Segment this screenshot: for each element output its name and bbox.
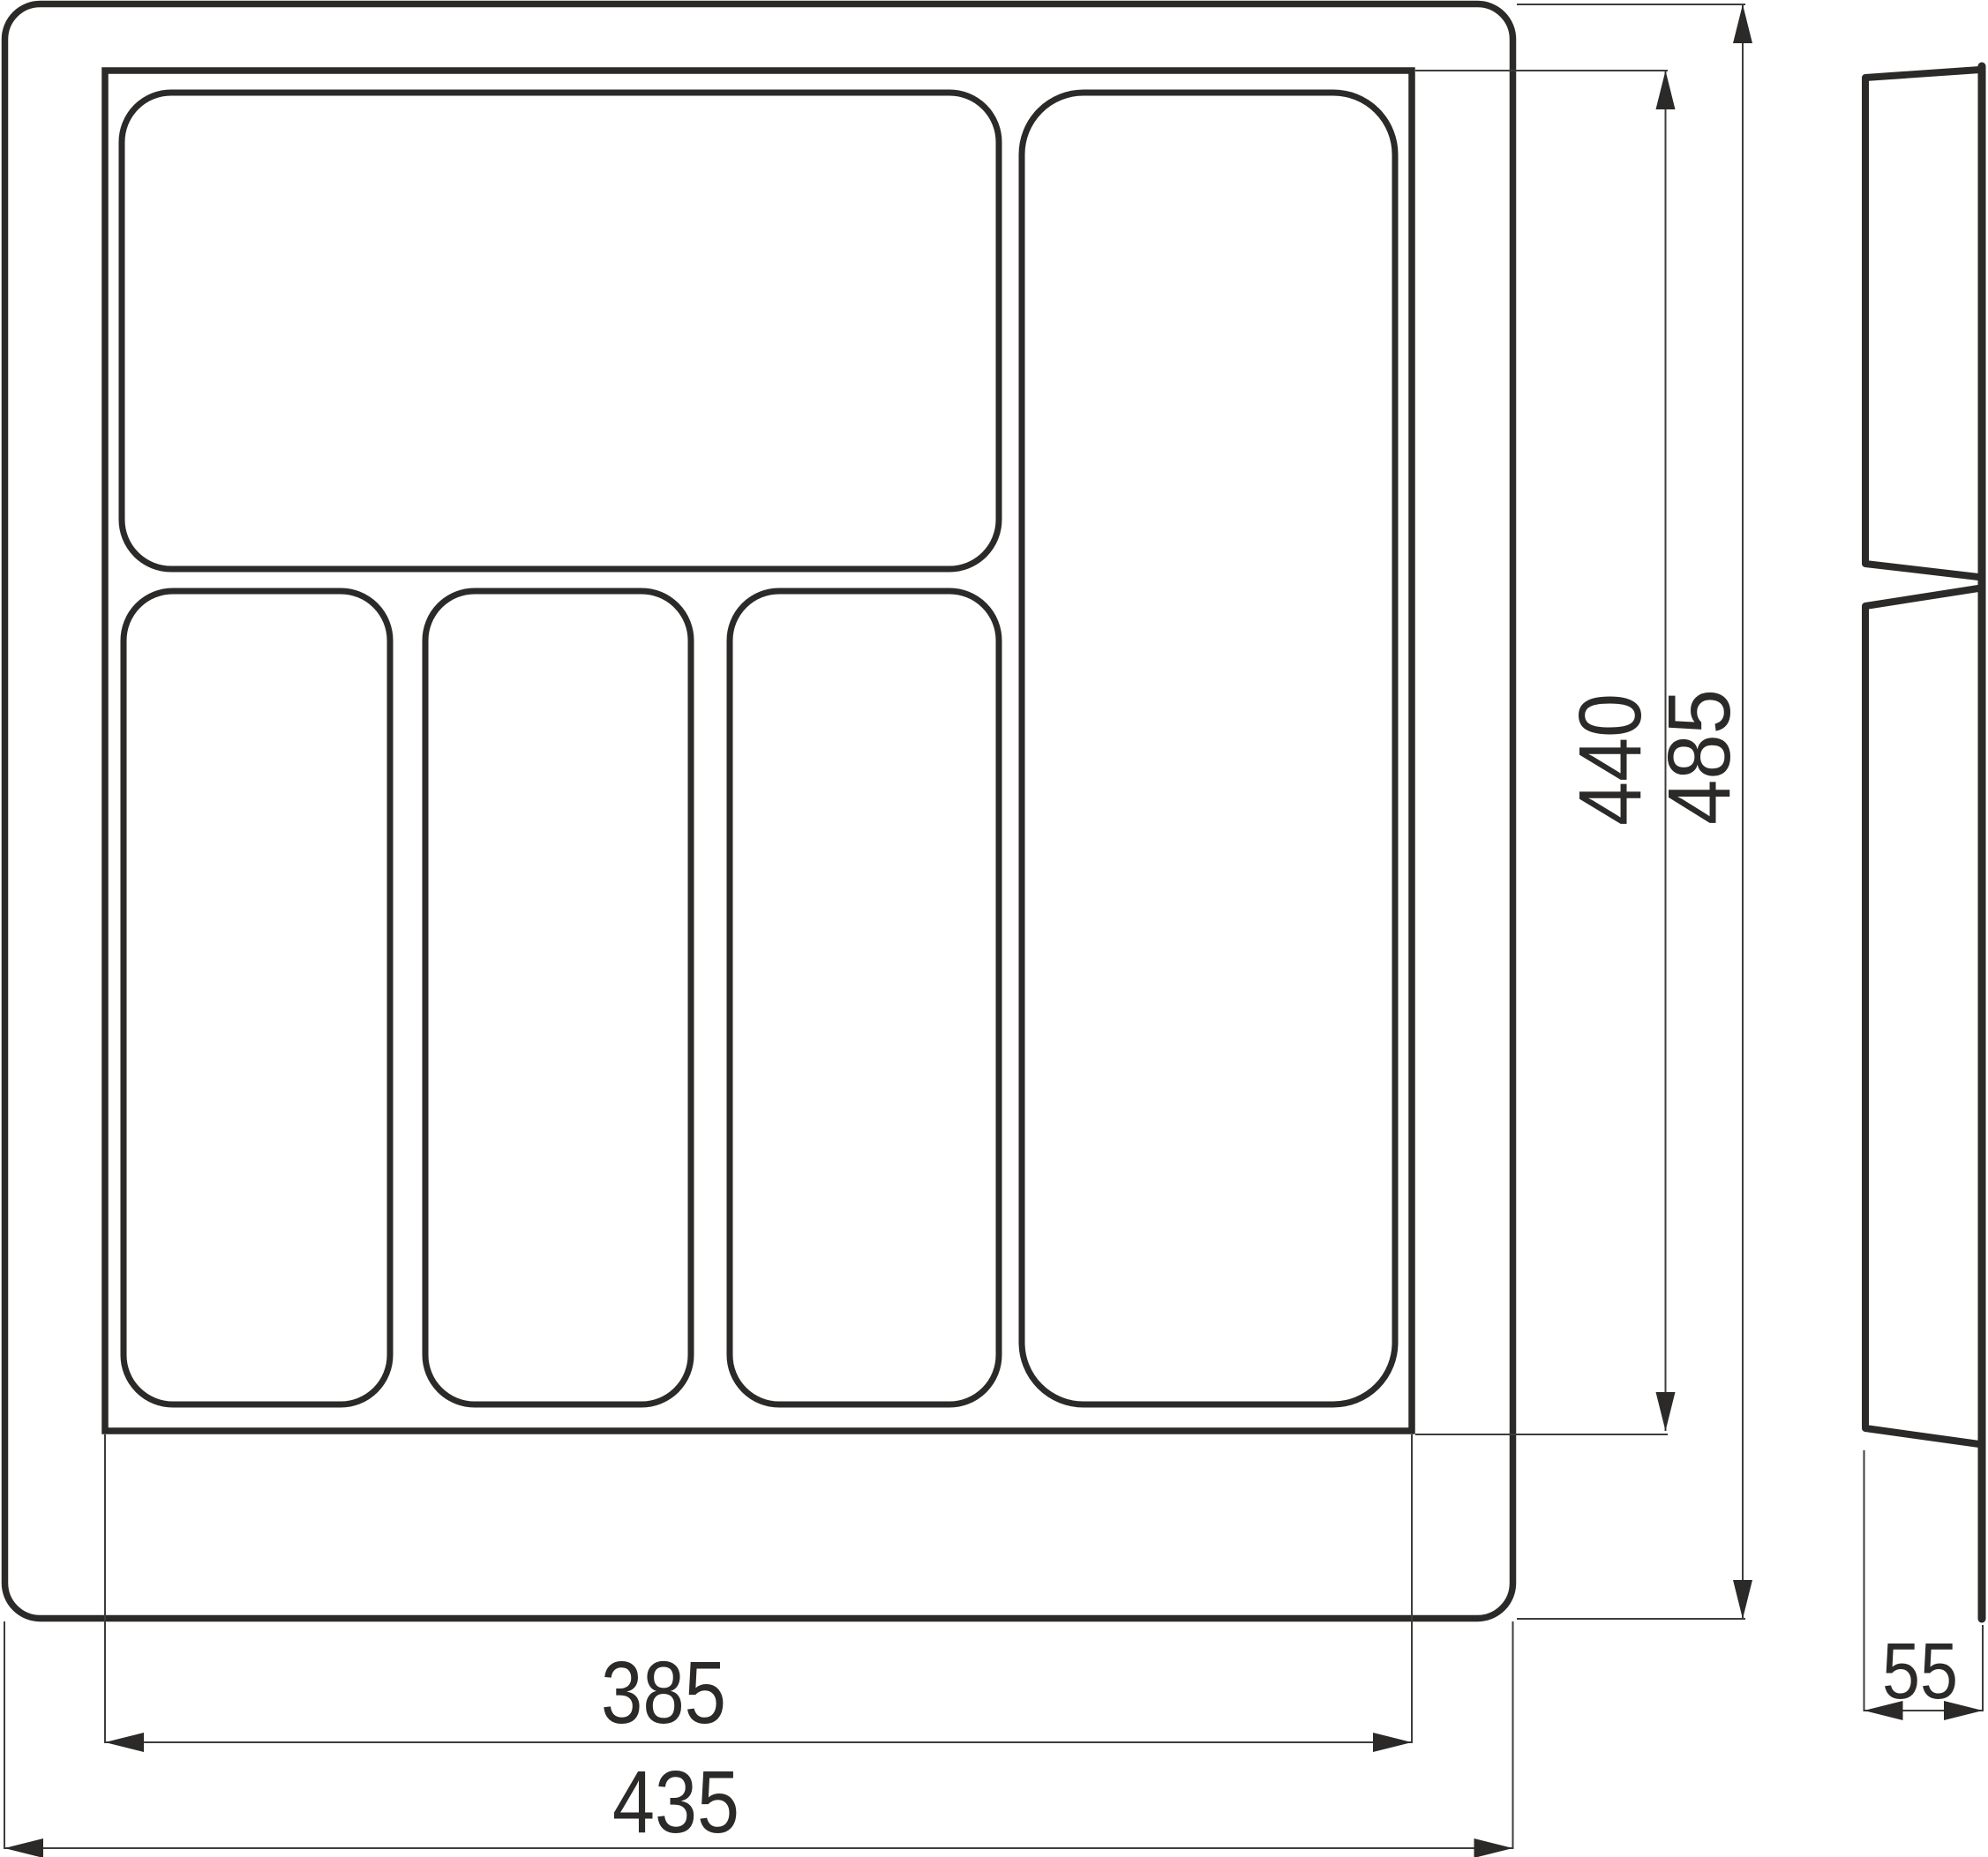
svg-text:440: 440	[1561, 693, 1660, 826]
svg-text:435: 435	[612, 1753, 739, 1852]
svg-text:55: 55	[1882, 1628, 1958, 1716]
svg-text:385: 385	[601, 1644, 726, 1742]
svg-text:485: 485	[1650, 689, 1749, 825]
